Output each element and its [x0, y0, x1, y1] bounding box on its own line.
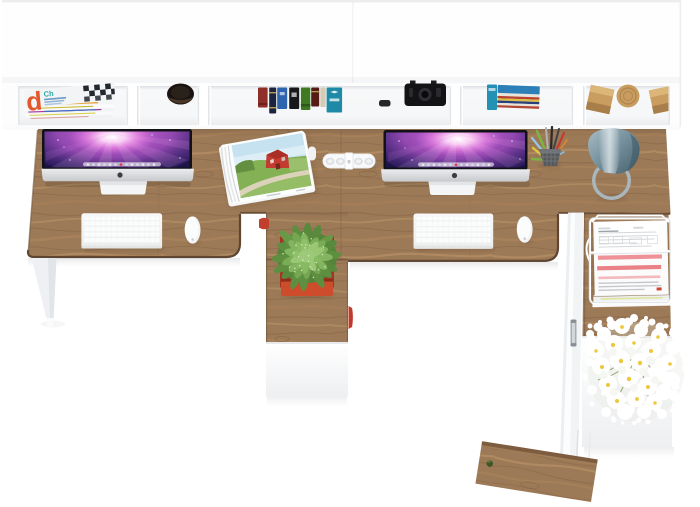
svg-text:d: d [25, 85, 43, 116]
svg-text:Ch: Ch [43, 89, 54, 99]
